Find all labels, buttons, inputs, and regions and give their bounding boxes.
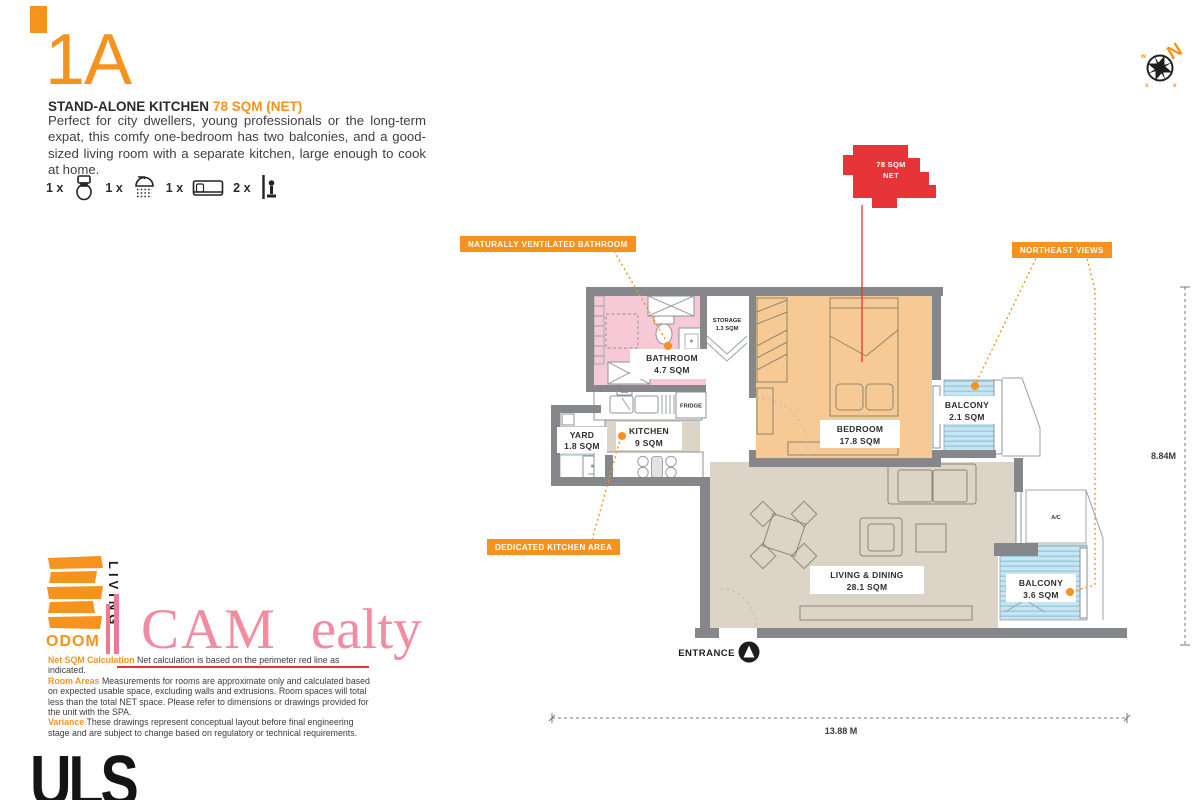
watermark-bar [114, 594, 119, 654]
storage-label: STORAGE [713, 318, 742, 324]
yard-area: 1.8 SQM [564, 441, 600, 451]
storage-area: 1.3 SQM [716, 326, 739, 332]
odom-wordmark: ODOM [46, 633, 100, 651]
bathroom-label: BATHROOM [646, 353, 698, 363]
living-window [1016, 490, 1021, 545]
compass-west: w [1140, 53, 1147, 60]
callout-naturally-ventilated-bathroom: NATURALLY VENTILATED BATHROOM [460, 236, 636, 252]
unit-subtitle: STAND-ALONE KITCHEN78 SQM (NET) [48, 99, 302, 114]
feature-qty: 1 x [166, 181, 183, 195]
legal-lead: Room Areas [48, 676, 100, 686]
living-area: 28.1 SQM [847, 582, 888, 592]
watermark-text-ealty: ealty [311, 606, 422, 654]
entrance-marker: ENTRANCE [678, 642, 759, 663]
width-dimension: 13.88 M [825, 726, 858, 736]
kitchen-area: 9 SQM [635, 438, 663, 448]
feature-qty: 1 x [105, 181, 122, 195]
callout-dedicated-kitchen-area: DEDICATED KITCHEN AREA [487, 539, 620, 555]
legal-text: These drawings represent conceptual layo… [48, 717, 357, 737]
perimeter-red-line-sample [117, 666, 369, 668]
balcony2-label: BALCONY [1019, 578, 1063, 588]
legal-lead: Variance [48, 717, 84, 727]
unit-type-label: STAND-ALONE KITCHEN [48, 99, 209, 114]
feature-qty: 1 x [46, 181, 63, 195]
compass-icon: N w s e [1140, 39, 1186, 89]
balcony1-label: BALCONY [945, 400, 989, 410]
living-floor [710, 462, 1018, 628]
entrance-label: ENTRANCE [678, 648, 735, 659]
fridge-label: FRIDGE [680, 404, 702, 410]
kitchen-sink [610, 396, 633, 413]
balcony1-area: 2.1 SQM [949, 412, 985, 422]
watermark-text-cam: CAM [141, 606, 277, 654]
callout-northeast-views: NORTHEAST VIEWS [1012, 242, 1112, 258]
bathroom-area: 4.7 SQM [654, 365, 690, 375]
bedroom-label: BEDROOM [837, 424, 884, 434]
tag-area: 78 SQM [876, 160, 905, 169]
shower-icon [132, 175, 157, 201]
uls-logo: ULS [30, 741, 136, 800]
living-label: LIVING & DINING [830, 570, 904, 580]
balcony2-railing [1080, 548, 1087, 618]
unit-description: Perfect for city dwellers, young profess… [48, 113, 426, 178]
ac-label: A/C [1051, 515, 1061, 521]
watermark-bar [106, 604, 110, 654]
compass-east: e [1173, 82, 1177, 89]
floorplan-page: S/B FRIDGE [0, 0, 1200, 800]
kitchen-label: KITCHEN [629, 426, 669, 436]
tag-net: NET [883, 171, 899, 180]
yard-label: YARD [570, 430, 595, 440]
odom-logo [46, 556, 108, 637]
feature-list: 1 x 1 x 1 x 2 x [46, 174, 278, 201]
balcony-icon [260, 174, 278, 201]
bedroom-area: 17.8 SQM [840, 436, 881, 446]
realty-watermark: CAM ealty [106, 594, 422, 654]
height-dimension: 8.84M [1151, 451, 1176, 461]
legal-lead: Net SQM Calculation [48, 655, 135, 665]
bed-icon [192, 175, 224, 201]
unit-area-label: 78 SQM (NET) [213, 99, 302, 114]
toilet-icon [72, 175, 96, 201]
balcony2-area: 3.6 SQM [1023, 590, 1059, 600]
unit-title: 1A [45, 26, 131, 94]
feature-qty: 2 x [233, 181, 250, 195]
toilet [654, 316, 674, 324]
compass-south: s [1145, 82, 1149, 89]
